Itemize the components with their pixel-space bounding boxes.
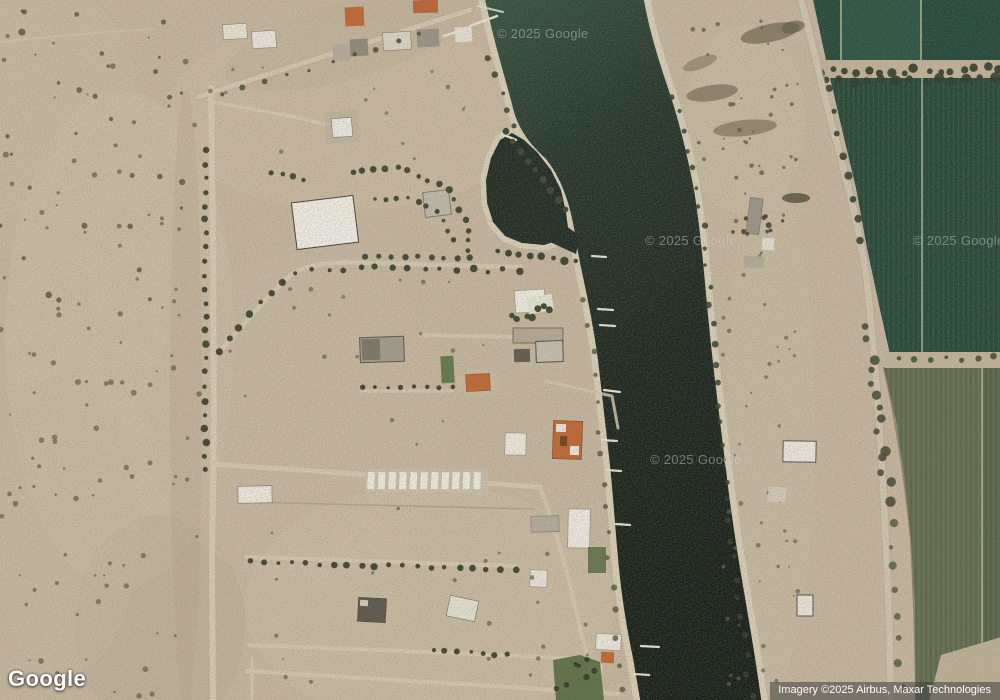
tree xyxy=(703,263,706,266)
tree xyxy=(725,480,730,485)
scrub xyxy=(72,158,77,163)
tree xyxy=(351,170,357,176)
tree xyxy=(202,368,208,374)
tree xyxy=(503,128,510,135)
scrub xyxy=(764,214,768,218)
tree xyxy=(202,287,208,293)
tree xyxy=(537,252,545,260)
scrub xyxy=(745,405,748,408)
scrub xyxy=(136,693,142,699)
scrub xyxy=(788,348,790,350)
tree xyxy=(415,564,420,569)
scrub xyxy=(81,223,87,229)
lawn xyxy=(553,655,604,700)
tree xyxy=(227,335,233,341)
tree xyxy=(343,562,350,569)
tree xyxy=(202,327,209,334)
scrub xyxy=(18,29,25,36)
scrub xyxy=(118,311,123,316)
scrub xyxy=(776,346,778,348)
tree xyxy=(525,158,532,165)
tree xyxy=(533,167,538,172)
tree xyxy=(441,648,447,654)
scrub xyxy=(171,365,176,370)
scrub xyxy=(148,382,153,387)
scrub xyxy=(782,214,785,217)
scrub xyxy=(19,486,22,489)
tree xyxy=(877,414,886,423)
tree xyxy=(737,614,743,620)
tree xyxy=(856,237,863,244)
scrub xyxy=(157,174,163,180)
tree xyxy=(732,554,737,559)
map-viewport[interactable]: © 2025 Google© 2025 Google© 2025 Google©… xyxy=(0,0,1000,700)
scrub xyxy=(148,36,150,38)
scrub xyxy=(288,287,292,291)
building xyxy=(531,516,559,532)
scrub xyxy=(282,658,284,660)
scrub xyxy=(768,362,772,366)
tree xyxy=(897,356,901,360)
scrub xyxy=(530,575,535,580)
tree xyxy=(540,176,547,183)
scrub xyxy=(554,686,559,691)
tree xyxy=(466,228,472,234)
tree xyxy=(481,651,486,656)
building xyxy=(744,255,765,268)
tree xyxy=(834,131,840,137)
tree xyxy=(492,71,499,78)
scrub xyxy=(737,128,742,133)
tree xyxy=(852,69,860,77)
scrub xyxy=(740,97,742,99)
scrub xyxy=(195,535,198,538)
tree xyxy=(501,92,505,96)
scrub xyxy=(749,163,754,168)
scrub xyxy=(94,574,97,577)
building xyxy=(333,44,351,62)
scrub xyxy=(795,589,800,594)
tree xyxy=(239,85,245,91)
scrub xyxy=(108,379,114,385)
tree xyxy=(724,517,730,523)
scrub xyxy=(541,645,545,649)
boat xyxy=(388,472,396,489)
tree xyxy=(831,66,837,72)
tree xyxy=(839,153,847,161)
scrub xyxy=(413,157,416,160)
tree xyxy=(470,650,474,654)
scrub xyxy=(309,287,314,292)
tree xyxy=(203,413,207,417)
tree xyxy=(204,314,210,320)
tree xyxy=(455,206,462,213)
tree xyxy=(446,186,453,193)
tree xyxy=(417,32,421,36)
scrub xyxy=(793,539,797,543)
boat xyxy=(378,472,386,489)
scrub xyxy=(756,543,761,548)
scrub xyxy=(94,426,100,432)
scrub xyxy=(752,131,754,133)
tree xyxy=(946,68,953,75)
scrub xyxy=(64,553,68,557)
imagery-attribution: Imagery ©2025 Airbus, Maxar Technologies xyxy=(770,682,1000,700)
tree xyxy=(946,77,955,86)
scrub xyxy=(143,666,149,672)
scrub xyxy=(103,574,105,576)
tree xyxy=(201,216,208,223)
scrub xyxy=(773,88,777,92)
boat xyxy=(441,472,449,489)
tree xyxy=(412,384,416,388)
tree xyxy=(685,149,690,154)
scrub xyxy=(130,173,135,178)
tree xyxy=(594,373,598,377)
scrub xyxy=(536,601,539,604)
scrub xyxy=(761,668,765,672)
tree xyxy=(854,215,862,223)
tree xyxy=(261,559,267,565)
tree xyxy=(682,129,687,134)
tree xyxy=(386,562,391,567)
scrub xyxy=(156,370,158,372)
tree xyxy=(203,244,208,249)
scrub xyxy=(765,230,769,234)
scrub xyxy=(93,94,98,99)
tree xyxy=(715,403,721,409)
scrub xyxy=(86,93,88,95)
tree xyxy=(551,256,556,261)
tree xyxy=(945,355,949,359)
scrub xyxy=(744,193,746,195)
tree xyxy=(596,400,600,404)
building xyxy=(223,23,248,39)
tree xyxy=(290,173,296,179)
tree xyxy=(844,172,852,180)
scrub-cluster xyxy=(782,193,810,203)
tree xyxy=(457,565,463,571)
tree xyxy=(877,469,884,476)
tree xyxy=(202,204,208,210)
scrub xyxy=(113,691,116,694)
scrub xyxy=(119,341,122,344)
scrub xyxy=(83,231,86,234)
tree xyxy=(620,687,626,693)
scrub xyxy=(180,91,183,94)
warehouse xyxy=(291,195,358,249)
scrub xyxy=(790,102,794,106)
scrub xyxy=(100,51,105,56)
tree xyxy=(202,274,207,279)
scrub xyxy=(442,420,445,423)
tree xyxy=(878,453,886,461)
tree xyxy=(592,349,598,355)
scrub xyxy=(104,584,108,588)
tree xyxy=(290,560,294,564)
tree xyxy=(961,74,971,84)
scrub xyxy=(309,680,313,684)
tree xyxy=(387,386,390,389)
crop-field xyxy=(841,0,923,61)
boat xyxy=(367,472,375,489)
scrub xyxy=(106,64,110,68)
scrub xyxy=(74,132,77,135)
scrub xyxy=(778,424,781,427)
tree xyxy=(887,477,896,486)
tree xyxy=(863,77,871,85)
tree xyxy=(382,166,389,173)
scrub xyxy=(262,66,264,68)
scrub xyxy=(727,509,732,514)
tree xyxy=(425,178,430,183)
tree xyxy=(309,267,314,272)
scrub xyxy=(19,574,21,576)
tree xyxy=(384,197,389,202)
scrub xyxy=(73,496,79,502)
building xyxy=(360,600,368,606)
tree xyxy=(835,75,842,82)
tree xyxy=(923,78,929,84)
scrub xyxy=(109,117,113,121)
scrub xyxy=(745,232,749,236)
scrub xyxy=(124,465,129,470)
scrub xyxy=(158,56,161,59)
scrub xyxy=(53,439,58,444)
scrub xyxy=(33,588,37,592)
scrub xyxy=(793,354,796,357)
tree xyxy=(216,348,223,355)
boat xyxy=(410,472,418,489)
tree xyxy=(328,268,332,272)
tree xyxy=(742,632,748,638)
satellite-map[interactable] xyxy=(0,0,1000,700)
scrub xyxy=(160,222,164,226)
tree xyxy=(204,176,208,180)
building xyxy=(761,237,774,250)
tree xyxy=(750,693,756,699)
scrub xyxy=(122,564,125,567)
scrub xyxy=(723,138,725,140)
scrub xyxy=(136,277,139,280)
building xyxy=(797,595,813,616)
scrub xyxy=(397,507,400,510)
scrub xyxy=(761,644,766,649)
tree xyxy=(515,252,521,258)
scrub xyxy=(85,658,88,661)
tree xyxy=(352,52,356,56)
tree xyxy=(469,565,476,572)
tree xyxy=(202,162,208,168)
tree xyxy=(574,259,578,263)
scrub xyxy=(147,460,152,465)
scrub xyxy=(577,664,581,668)
tree xyxy=(435,209,440,214)
tree xyxy=(398,385,403,390)
tree xyxy=(203,190,208,195)
scrub xyxy=(180,206,183,209)
scrub xyxy=(153,69,158,74)
scrub xyxy=(279,150,284,155)
boat xyxy=(431,472,439,489)
scrub xyxy=(758,165,760,167)
scrub xyxy=(33,391,36,394)
scrub xyxy=(401,142,404,145)
scrub xyxy=(34,54,36,56)
scrub xyxy=(545,552,550,557)
scrub xyxy=(716,22,720,26)
tree xyxy=(441,256,446,261)
scrub xyxy=(28,186,32,190)
scrub xyxy=(150,691,155,696)
tree xyxy=(201,425,208,432)
google-watermark: © 2025 Google xyxy=(497,26,589,41)
tree xyxy=(725,496,730,501)
tree xyxy=(696,204,700,208)
tree xyxy=(868,367,874,373)
tree xyxy=(850,196,857,203)
tree xyxy=(425,385,429,389)
google-logo[interactable]: Google xyxy=(8,666,86,692)
scrub xyxy=(514,316,520,322)
scrub xyxy=(178,314,181,317)
tree xyxy=(359,563,365,569)
tree xyxy=(442,219,446,223)
scrub xyxy=(727,329,732,334)
scrub xyxy=(7,492,12,497)
scrub xyxy=(739,501,744,506)
tree xyxy=(911,356,917,362)
scrub xyxy=(39,437,45,443)
tree xyxy=(454,267,461,274)
dock xyxy=(592,256,606,257)
tree xyxy=(495,249,500,254)
scrub xyxy=(46,226,49,229)
building xyxy=(362,339,381,361)
tree xyxy=(202,454,207,459)
tree xyxy=(436,385,441,390)
tree xyxy=(203,147,209,153)
scrub xyxy=(177,227,181,231)
tree xyxy=(394,196,399,201)
tree xyxy=(612,635,618,641)
main-road xyxy=(211,88,214,700)
scrub xyxy=(57,81,60,84)
tree xyxy=(437,267,441,271)
scrub xyxy=(586,654,589,657)
scrub xyxy=(224,91,227,94)
scrub xyxy=(583,674,589,680)
scrub xyxy=(770,95,774,99)
scrub xyxy=(148,297,152,301)
boat xyxy=(399,472,407,489)
scrub xyxy=(9,414,11,416)
scrub xyxy=(92,172,98,178)
scrub xyxy=(120,380,124,384)
scrub xyxy=(777,360,780,363)
tree xyxy=(896,635,902,641)
scrub xyxy=(192,123,197,128)
tree xyxy=(745,652,751,658)
scrub xyxy=(328,313,331,316)
tree xyxy=(415,254,420,259)
boat xyxy=(452,472,460,489)
scrub xyxy=(179,179,185,185)
building xyxy=(505,433,526,455)
scrub xyxy=(737,676,741,680)
tree xyxy=(466,238,471,243)
scrub xyxy=(702,157,706,161)
tree xyxy=(961,66,968,73)
building xyxy=(417,28,440,47)
tree xyxy=(711,321,717,327)
scrub xyxy=(28,352,31,355)
boat xyxy=(463,472,471,489)
tree xyxy=(617,663,622,668)
tree xyxy=(513,567,520,574)
tree xyxy=(894,659,902,667)
tree xyxy=(423,203,428,208)
scrub xyxy=(782,49,784,51)
tree xyxy=(547,187,555,195)
tree xyxy=(873,428,879,434)
tree xyxy=(563,207,569,213)
scrub xyxy=(51,360,56,365)
tree xyxy=(370,166,377,173)
tree xyxy=(442,565,446,569)
lawn xyxy=(440,356,454,384)
dock xyxy=(641,646,659,647)
crop-field xyxy=(921,0,1000,61)
tree xyxy=(248,558,253,563)
scrub xyxy=(760,521,763,524)
tree xyxy=(510,139,516,145)
scrub xyxy=(498,552,501,555)
tree xyxy=(505,652,510,657)
boat xyxy=(473,472,481,489)
tree xyxy=(602,482,607,487)
scrub xyxy=(451,348,456,353)
scrub xyxy=(453,578,457,582)
tree xyxy=(607,530,611,534)
scrub xyxy=(722,147,725,150)
scrub xyxy=(108,561,112,565)
scrub xyxy=(763,303,766,306)
scrub xyxy=(170,354,173,357)
scrub xyxy=(85,380,88,383)
tree xyxy=(709,285,714,290)
scrub xyxy=(525,314,531,320)
scrub xyxy=(722,565,725,568)
tree xyxy=(826,85,833,92)
tree xyxy=(359,265,365,271)
tree xyxy=(868,381,874,387)
scrub xyxy=(75,379,81,385)
scrub xyxy=(729,674,733,678)
scrub xyxy=(759,170,764,175)
scrub xyxy=(172,483,175,486)
scrub xyxy=(156,632,158,634)
scrub xyxy=(373,88,375,90)
building xyxy=(783,441,816,463)
building xyxy=(560,436,567,446)
scrub xyxy=(231,68,235,72)
scrub xyxy=(727,682,731,686)
tree xyxy=(303,560,309,566)
scrub xyxy=(744,216,748,220)
tree xyxy=(832,109,837,114)
tree xyxy=(317,563,322,568)
